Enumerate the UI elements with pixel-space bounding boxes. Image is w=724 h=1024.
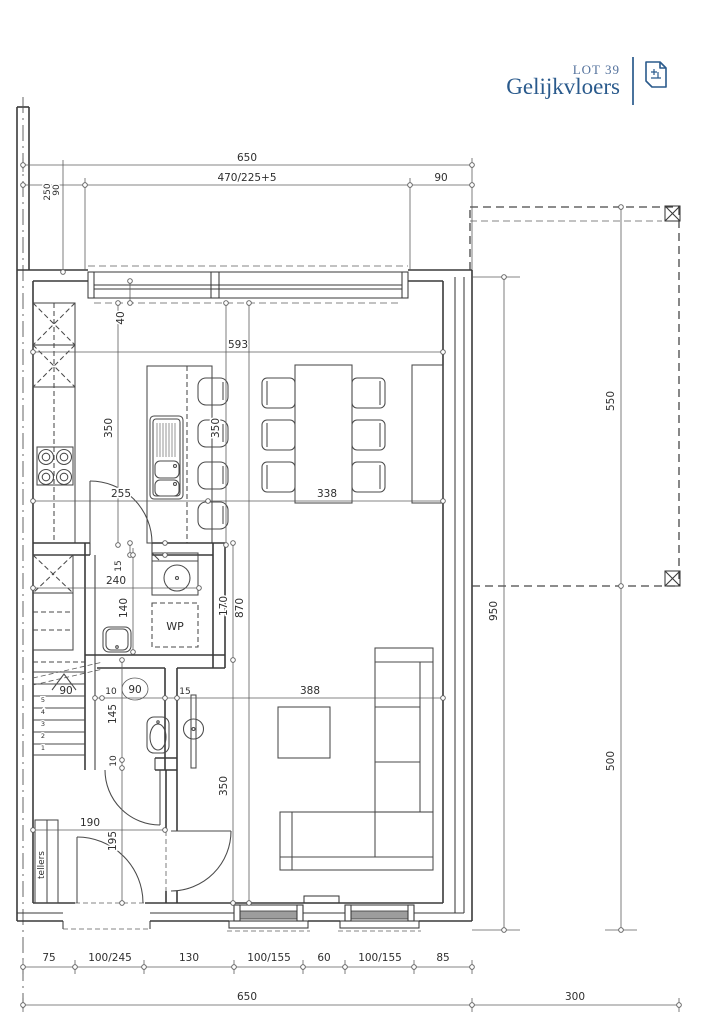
dim-island-side: 350 [210, 418, 222, 438]
front-door-recess [63, 921, 150, 929]
title-divider [632, 57, 634, 105]
meter-cabinet: tellers [35, 820, 58, 903]
dim-stairs-width: 90 [59, 685, 72, 697]
dim-storage-width: 240 [106, 575, 126, 587]
svg-text:4: 4 [41, 708, 45, 716]
dim-storage-height: 140 [118, 598, 130, 618]
dining-chairs [262, 378, 385, 492]
heat-pump-unit: WP [152, 603, 198, 647]
sofa [280, 648, 433, 870]
terrace-column-bottom [665, 571, 680, 586]
dim-facade-segment: 100/155 [358, 952, 402, 964]
stairs: 90 1 2 3 4 5 [33, 662, 103, 755]
floorplan-sheet-icon [642, 58, 672, 96]
wc-door [105, 770, 160, 825]
svg-text:1: 1 [41, 744, 45, 752]
wc-walls [155, 668, 177, 770]
dim-island-length: 350 [103, 418, 115, 438]
dim-living-width: 388 [300, 685, 320, 697]
dim-facade-segment: 130 [179, 952, 199, 964]
cooktop [37, 447, 73, 485]
dim-hall-height: 195 [107, 831, 119, 851]
dim-living-height: 350 [218, 776, 230, 796]
party-wall [17, 97, 33, 1013]
dim-facade-segment: 60 [317, 952, 330, 964]
coffee-table [278, 707, 330, 758]
hall-living-wall [166, 770, 177, 903]
dim-wc-length: 145 [107, 704, 119, 724]
sink-drainer [157, 423, 175, 457]
dim-interior-width: 593 [228, 339, 248, 351]
hand-basin [103, 627, 131, 652]
dim-terrace-length: 550 [605, 391, 617, 411]
sideboard [412, 365, 443, 503]
svg-text:3: 3 [41, 720, 45, 728]
stairs-tread-numbers: 1 2 3 4 5 [41, 696, 45, 752]
dim-side-total: 950 [488, 601, 500, 621]
washing-machine [152, 553, 198, 595]
dim-top-total: 650 [237, 152, 257, 164]
facade-window-1 [227, 905, 310, 931]
dim-terrace-width: 300 [565, 991, 585, 1003]
dim-terrace-side: 500 [605, 751, 617, 771]
floorplan-page: LOT 39 Gelijkvloers [0, 0, 724, 1024]
dim-top-right-pier: 90 [434, 172, 447, 184]
dim-facade-segment: 85 [436, 952, 449, 964]
dim-facade-segment: 100/245 [88, 952, 132, 964]
dim-wc-door-width: 90 [128, 684, 141, 696]
facade-window-2 [338, 905, 421, 931]
top-window [88, 266, 408, 303]
dim-wc-wall: 15 [179, 687, 190, 697]
dim-top-left-axis: 250 [43, 183, 53, 200]
kitchen-tall-cabinets [33, 303, 75, 543]
storage-cabinet [33, 555, 73, 650]
svg-text:5: 5 [41, 696, 45, 704]
terrace-column-top [665, 206, 680, 221]
dim-facade-segment: 75 [42, 952, 55, 964]
dim-storage-wall: 15 [114, 560, 124, 571]
dim-facade-total: 650 [237, 991, 257, 1003]
svg-text:2: 2 [41, 732, 45, 740]
dim-facade-segment: 100/155 [247, 952, 291, 964]
living-room-door [171, 831, 231, 891]
dim-wc-jamb: 10 [105, 687, 117, 697]
right-exterior-wall [443, 270, 472, 921]
dim-top-opening: 470/225+5 [217, 172, 276, 184]
meter-cabinet-label: tellers [37, 851, 47, 879]
heat-pump-label: WP [166, 620, 184, 633]
kitchen-sink [150, 416, 183, 499]
radiator [184, 695, 204, 768]
floorplan-drawing: WP [0, 0, 724, 1024]
dim-counter-to-island: 255 [111, 488, 131, 500]
dim-interior-height: 870 [234, 598, 246, 618]
dim-hall-width: 190 [80, 817, 100, 829]
dim-dining-width: 338 [317, 488, 337, 500]
terrace-outline [470, 206, 680, 586]
dining-table [295, 365, 352, 503]
bar-stools [198, 378, 228, 529]
dim-top-left-pier: 90 [52, 184, 62, 196]
dim-storage-outer: 170 [218, 596, 230, 616]
dim-wc-bottom-wall: 10 [109, 755, 119, 767]
page-title: Gelijkvloers [506, 74, 620, 100]
dim-window-depth: 40 [115, 311, 127, 324]
